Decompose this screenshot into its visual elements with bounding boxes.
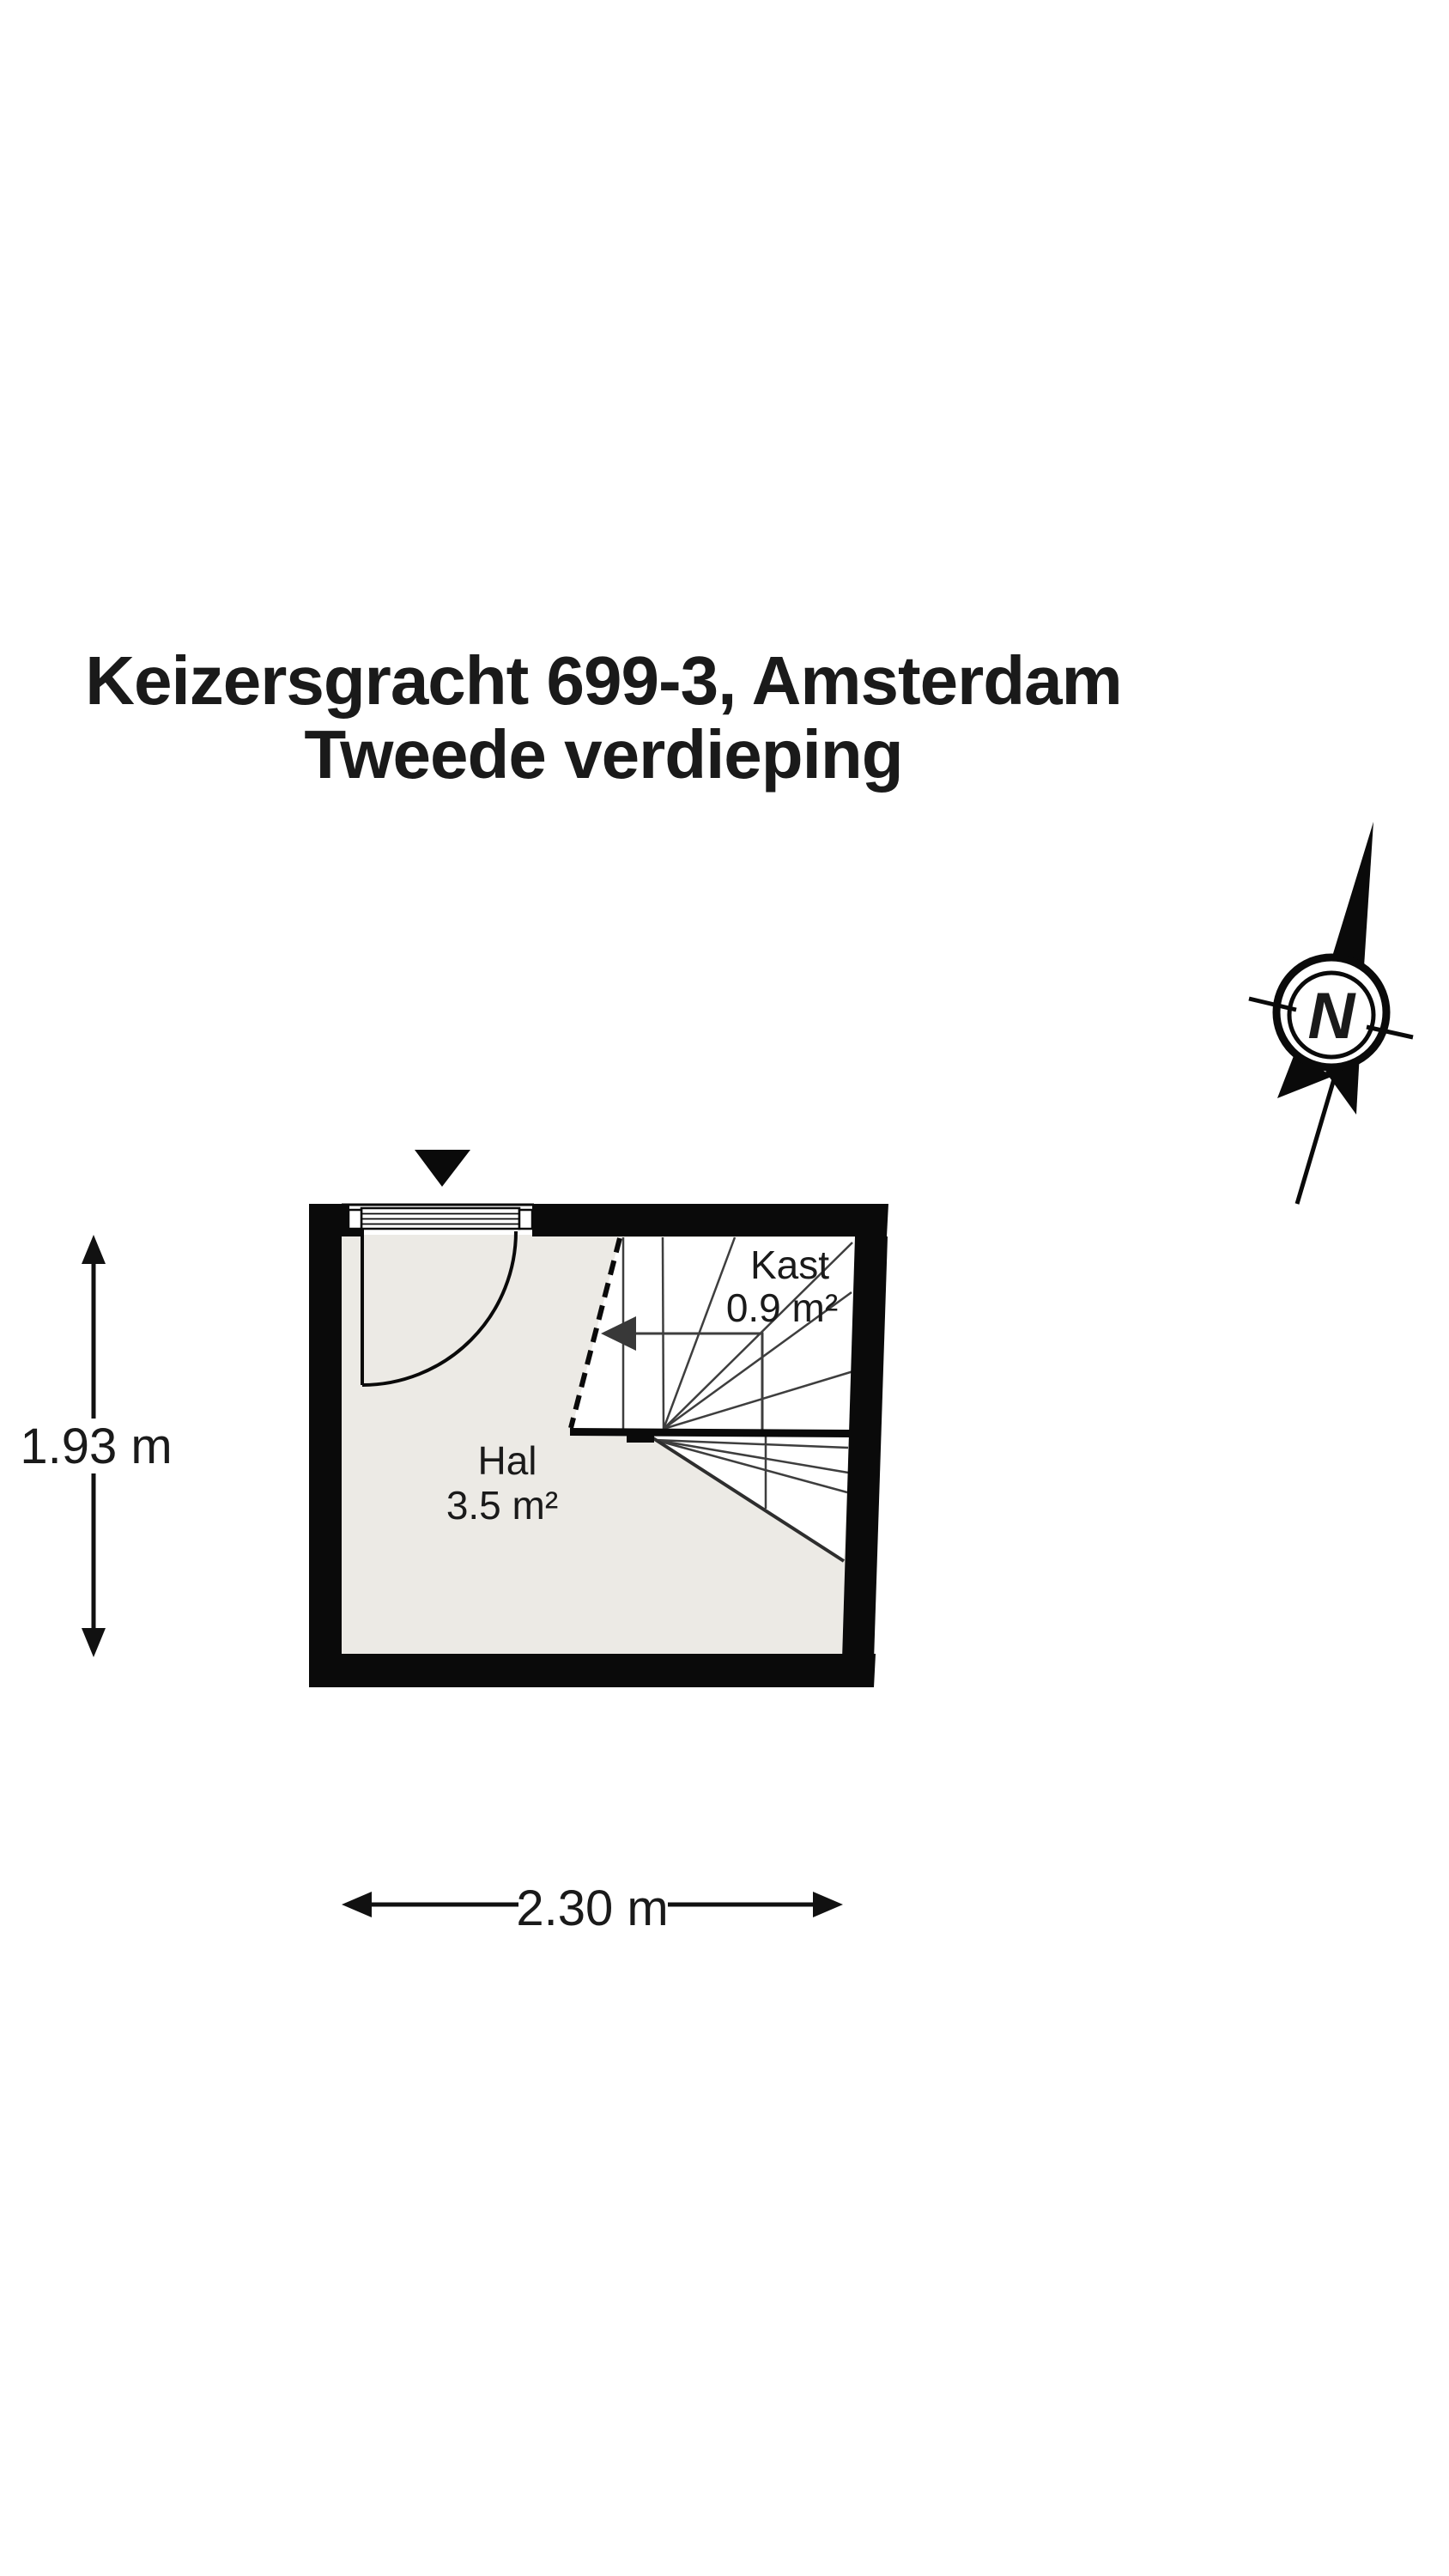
door-post-left	[349, 1210, 361, 1229]
height-dimension-label: 1.93 m	[20, 1419, 172, 1474]
room-kast-name: Kast	[750, 1242, 829, 1287]
dimension-horizontal: 2.30 m	[342, 1880, 843, 1936]
floorplan-page: Keizersgracht 699-3, Amsterdam Tweede ve…	[0, 0, 1449, 2576]
arrow-down-icon	[82, 1628, 106, 1657]
page-title-line1: Keizersgracht 699-3, Amsterdam	[85, 642, 1122, 719]
door-post-right	[519, 1210, 532, 1229]
arrow-left-icon	[342, 1892, 372, 1917]
compass-north-label: N	[1308, 980, 1357, 1053]
compass-tail-line	[1297, 1073, 1336, 1204]
width-dimension-label: 2.30 m	[516, 1880, 668, 1936]
stair-stringer-nub	[627, 1433, 654, 1443]
dimension-vertical: 1.93 m	[20, 1235, 172, 1657]
wall-top	[532, 1204, 888, 1236]
arrow-right-icon	[813, 1892, 843, 1917]
floorplan-canvas: Keizersgracht 699-3, Amsterdam Tweede ve…	[0, 0, 1449, 2576]
wall-bottom	[309, 1654, 876, 1687]
floor-plan: Kast 0.9 m² Hal 3.5 m²	[309, 1150, 888, 1687]
room-hal-area: 3.5 m²	[446, 1483, 558, 1528]
arrow-up-icon	[82, 1235, 106, 1264]
north-compass-icon: N	[1249, 822, 1413, 1204]
wall-left	[309, 1204, 342, 1687]
wall-door-nub	[342, 1229, 361, 1236]
room-hal-name: Hal	[477, 1438, 537, 1483]
page-title-line2: Tweede verdieping	[304, 716, 902, 793]
room-kast-area: 0.9 m²	[726, 1285, 838, 1330]
entrance-marker-icon	[415, 1150, 470, 1187]
